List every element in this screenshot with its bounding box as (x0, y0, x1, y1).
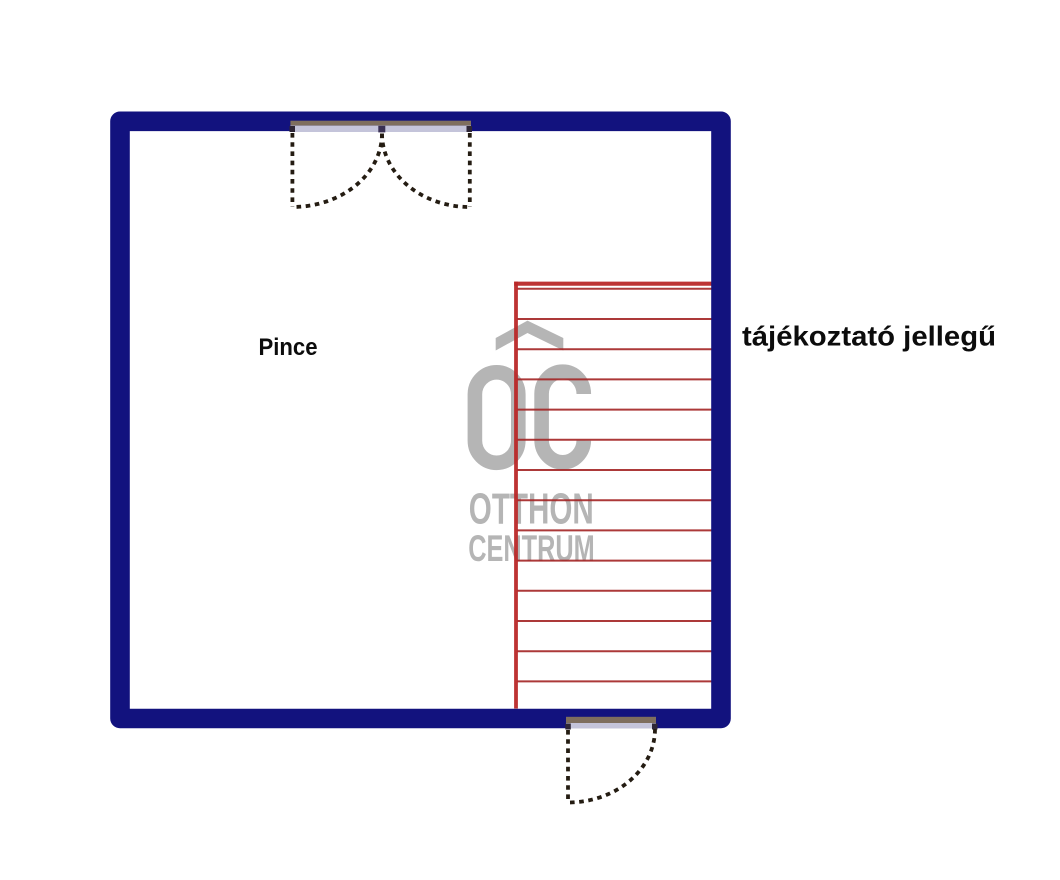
svg-text:Pince: Pince (259, 334, 318, 361)
svg-text:OTTHON: OTTHON (469, 485, 594, 534)
svg-text:tájékoztató jellegű: tájékoztató jellegű (742, 321, 996, 352)
svg-text:CENTRUM: CENTRUM (468, 528, 595, 569)
